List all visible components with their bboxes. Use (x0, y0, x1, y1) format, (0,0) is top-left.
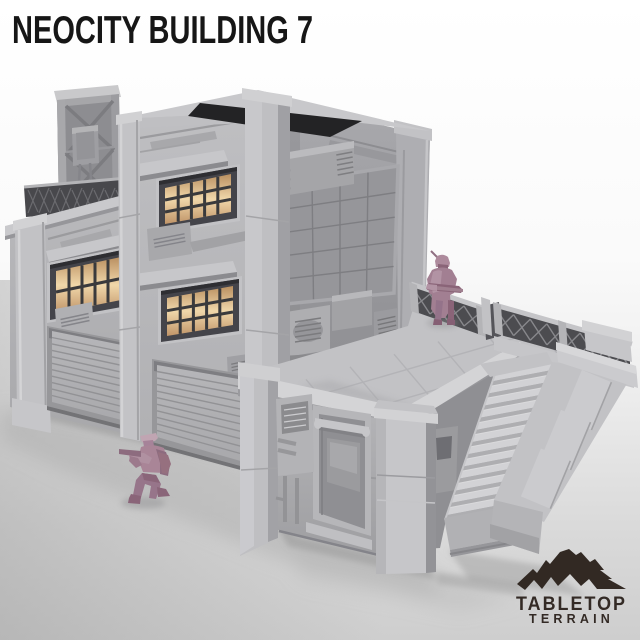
svg-text:TERRAIN: TERRAIN (529, 612, 614, 626)
svg-text:NEOCITY BUILDING 7: NEOCITY BUILDING 7 (12, 9, 313, 52)
